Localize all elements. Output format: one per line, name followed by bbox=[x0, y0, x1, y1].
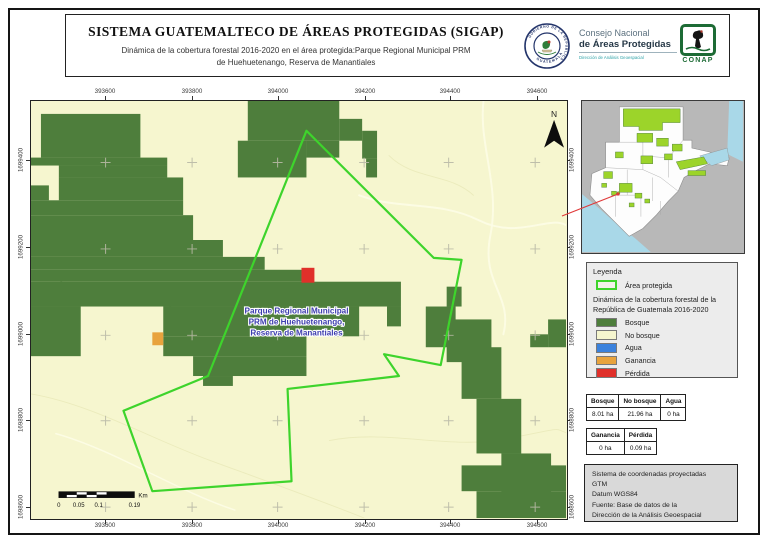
legend-title: Leyenda bbox=[593, 267, 731, 276]
y-axis-label-left: 1698600 bbox=[18, 495, 25, 519]
x-tick-bottom bbox=[278, 520, 279, 524]
legend-color-swatch bbox=[596, 330, 617, 340]
x-axis-label-top: 394400 bbox=[440, 88, 461, 95]
legend: Leyenda Área protegida Dinámica de la co… bbox=[586, 262, 738, 378]
legend-items: BosqueNo bosqueAguaGananciaPérdida bbox=[593, 318, 731, 378]
table-value: 0 ha bbox=[587, 442, 625, 455]
table-value: 8.01 ha bbox=[587, 408, 619, 421]
conap-label: CONAP bbox=[679, 57, 717, 64]
guatemala-inset-map bbox=[581, 100, 745, 254]
subtitle-line-1: Dinámica de la cobertura forestal 2016-2… bbox=[121, 46, 470, 55]
legend-item-label: Bosque bbox=[625, 318, 649, 327]
legend-item-label: Ganancia bbox=[625, 356, 656, 365]
table-header: Ganancia bbox=[587, 429, 625, 442]
area-protegida-label: Área protegida bbox=[625, 281, 672, 290]
legend-item-label: Pérdida bbox=[625, 369, 650, 378]
credits-line: Sistema de coordenadas proyectadas bbox=[592, 470, 730, 480]
legend-item-area-protegida: Área protegida bbox=[593, 280, 731, 290]
org-line-2: de Áreas Protegidas bbox=[579, 39, 677, 53]
table-header: No bosque bbox=[619, 395, 661, 408]
x-tick-bottom bbox=[192, 520, 193, 524]
table-header: Pérdida bbox=[624, 429, 656, 442]
svg-text:Parque Regional Municipal: Parque Regional Municipal bbox=[245, 306, 349, 315]
svg-text:Km: Km bbox=[138, 493, 147, 500]
map-layout-page: SISTEMA GUATEMALTECO DE ÁREAS PROTEGIDAS… bbox=[0, 0, 768, 543]
legend-color-swatch bbox=[596, 368, 617, 378]
caribbean-sea bbox=[727, 101, 743, 162]
x-axis-label-top: 394600 bbox=[527, 88, 548, 95]
org-line-1: Consejo Nacional bbox=[579, 28, 677, 38]
table-header: Agua bbox=[661, 395, 686, 408]
svg-text:0.05: 0.05 bbox=[73, 503, 85, 509]
x-tick-bottom bbox=[105, 520, 106, 524]
legend-item-no-bosque: No bosque bbox=[593, 330, 731, 340]
protected-area-label: Parque Regional MunicipalPRM de Huehuete… bbox=[245, 306, 349, 337]
legend-subtitle: Dinámica de la cobertura forestal de la … bbox=[593, 295, 731, 314]
change-table: GananciaPérdida0 ha0.09 ha bbox=[586, 428, 657, 455]
x-axis-label-top: 393600 bbox=[95, 88, 116, 95]
y-axis-label-left: 1699200 bbox=[18, 235, 25, 259]
page-title: SISTEMA GUATEMALTECO DE ÁREAS PROTEGIDAS… bbox=[76, 24, 516, 40]
svg-text:0.19: 0.19 bbox=[129, 503, 141, 509]
svg-text:N: N bbox=[551, 109, 557, 119]
x-axis-label-top: 393800 bbox=[182, 88, 203, 95]
conap-logo: CONAP bbox=[679, 24, 717, 64]
area-protegida-swatch bbox=[596, 280, 617, 290]
legend-color-swatch bbox=[596, 356, 617, 366]
legend-item-p-rdida: Pérdida bbox=[593, 368, 731, 378]
legend-item-ganancia: Ganancia bbox=[593, 356, 731, 366]
org-line-3: Dirección de Análisis Geoespacial bbox=[579, 55, 677, 60]
subtitle-line-2: de Huehuetenango, Reserva de Manantiales bbox=[217, 58, 376, 67]
main-map: Parque Regional MunicipalPRM de Huehuete… bbox=[30, 100, 568, 520]
x-tick-bottom bbox=[537, 520, 538, 524]
legend-item-agua: Agua bbox=[593, 343, 731, 353]
projection-credits: Sistema de coordenadas proyectadasGTMDat… bbox=[584, 464, 738, 522]
prm-location-marker bbox=[617, 192, 620, 195]
credits-line: Dirección de la Análisis Geoespacial bbox=[592, 511, 730, 521]
header: SISTEMA GUATEMALTECO DE ÁREAS PROTEGIDAS… bbox=[65, 14, 730, 77]
guatemala-seal-icon: GOBIERNO DE LA REPÚBLICA GUATEMALA bbox=[523, 22, 571, 70]
table-value: 0.09 ha bbox=[624, 442, 656, 455]
x-tick-bottom bbox=[450, 520, 451, 524]
legend-item-bosque: Bosque bbox=[593, 318, 731, 328]
table-value: 0 ha bbox=[661, 408, 686, 421]
svg-text:0.1: 0.1 bbox=[94, 503, 103, 509]
table-value: 21.96 ha bbox=[619, 408, 661, 421]
x-tick-bottom bbox=[365, 520, 366, 524]
x-axis-label-top: 394000 bbox=[268, 88, 289, 95]
legend-color-swatch bbox=[596, 318, 617, 328]
credits-line: Datum WGS84 bbox=[592, 490, 730, 500]
ganancia-pixel bbox=[152, 332, 163, 345]
legend-color-swatch bbox=[596, 343, 617, 353]
perdida-pixel bbox=[301, 268, 314, 283]
page-subtitle: Dinámica de la cobertura forestal 2016-2… bbox=[76, 45, 516, 69]
y-axis-label-left: 1699000 bbox=[18, 322, 25, 346]
y-axis-label-left: 1698800 bbox=[18, 408, 25, 432]
svg-text:PRM de Huehuetenango,: PRM de Huehuetenango, bbox=[249, 317, 345, 326]
coverage-table: BosqueNo bosqueAgua8.01 ha21.96 ha0 ha bbox=[586, 394, 686, 421]
credits-line: Fuente: Base de datos de la bbox=[592, 501, 730, 511]
svg-text:Reserva de Manantiales: Reserva de Manantiales bbox=[250, 328, 343, 337]
x-axis-label-top: 394200 bbox=[355, 88, 376, 95]
conap-wordmark: Consejo Nacional de Áreas Protegidas Dir… bbox=[579, 28, 677, 60]
y-axis-label-left: 1699400 bbox=[18, 148, 25, 172]
legend-item-label: Agua bbox=[625, 343, 642, 352]
conap-quetzal-icon bbox=[680, 24, 716, 56]
legend-item-label: No bosque bbox=[625, 331, 660, 340]
table-header: Bosque bbox=[587, 395, 619, 408]
credits-line: GTM bbox=[592, 480, 730, 490]
